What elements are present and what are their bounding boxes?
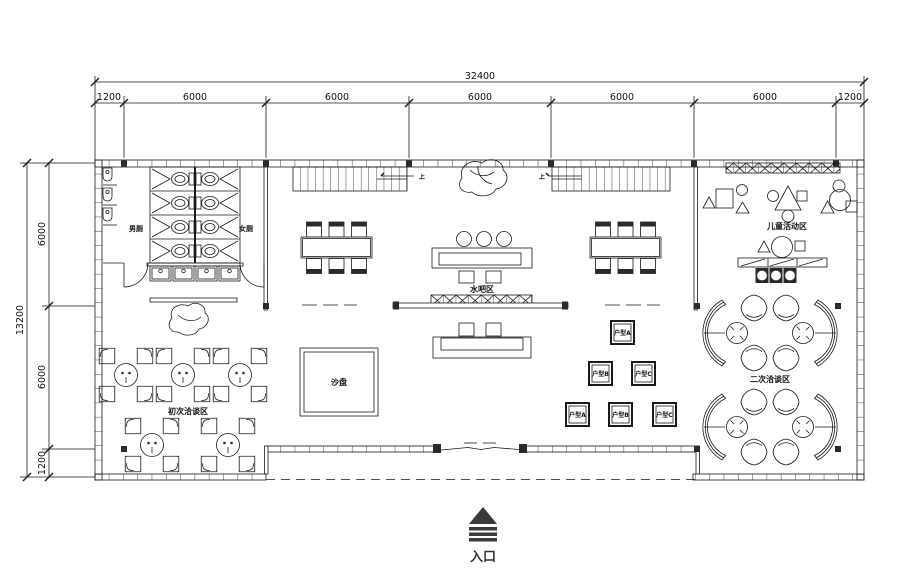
dim-seg: 1200 [37,451,48,475]
negotiation-table-group [117,410,186,479]
dim-seg: 1200 [838,92,862,103]
urinal [103,208,112,221]
stair-up-label: 上 [539,173,545,181]
dim-seg: 6000 [325,92,349,103]
second-negotiation-label: 二次洽谈区 [750,374,790,384]
children-activity-label: 儿童活动区 [766,221,807,231]
dim-seg: 6000 [37,365,48,389]
unit-board: 户型B [609,403,632,426]
sink-counter [150,266,240,281]
dim-seg: 6000 [610,92,634,103]
dim-seg: 6000 [183,92,207,103]
door-swing [124,263,148,287]
partition-wall-right [694,167,698,310]
unit-board: 户型B [589,362,612,385]
unit-board: 户型C [653,403,676,426]
bar-partition [393,303,568,308]
unit-board: 户型A [566,403,589,426]
negotiation-table-group [205,340,274,409]
unit-board: 户型A [611,321,634,344]
toilet-block: 男厕 女厕 [103,167,264,302]
kid-stool [770,268,783,283]
svg-text:户型A: 户型A [614,329,631,337]
svg-text:户型C: 户型C [635,370,652,378]
mens-toilet-label: 男厕 [129,224,143,233]
svg-text:户型B: 户型B [592,370,609,378]
bar-stool [457,232,472,247]
negotiation-table-group [193,410,262,479]
conference-table-right [590,222,661,274]
svg-text:户型B: 户型B [612,411,629,419]
bar-stool [497,232,512,247]
dim-seg: 6000 [468,92,492,103]
bench [150,298,237,302]
svg-text:户型A: 户型A [569,411,586,419]
initial-negotiation-label: 初次洽谈区 [168,406,208,416]
initial-negotiation-area: 初次洽谈区 [91,340,274,479]
stair-left: 上 [293,167,425,191]
building-walls [95,160,864,480]
kid-stool [756,268,769,283]
floor-plan-drawing: 32400 1200 6000 6000 6000 6000 6000 1200… [0,0,904,575]
sofa-set [703,389,837,465]
bar-stool [477,232,492,247]
kid-stool [784,268,797,283]
urinal [103,188,112,201]
unit-board: 户型C [632,362,655,385]
entrance-marker: 入口 [469,507,497,565]
svg-text:户型C: 户型C [656,411,673,419]
stair-right: 上 [539,167,670,191]
dim-total-height: 13200 [15,305,26,335]
conference-table-left [301,222,372,274]
second-negotiation-area: 二次洽谈区 [703,295,837,465]
entrance-label: 入口 [470,550,496,565]
stair-up-label: 上 [419,173,425,181]
entrance-arrow-icon [469,507,497,524]
sand-table: 沙盘 [300,348,378,416]
entrance-door [433,443,527,453]
dim-seg: 6000 [37,222,48,246]
children-activity-area: 儿童活动区 [703,163,857,283]
top-dimension: 32400 1200 6000 6000 6000 6000 6000 1200 [91,71,868,160]
dim-seg: 1200 [97,92,121,103]
womens-toilet-label: 女厕 [239,224,253,233]
sofa-set [703,295,837,371]
unit-boards: 户型A 户型B 户型C 户型A 户型B 户型C [566,321,676,426]
urinal [103,168,112,181]
negotiation-table-group [148,340,217,409]
plant-toilet [169,303,208,335]
door-swing [240,263,264,287]
floor-plan-canvas: 32400 1200 6000 6000 6000 6000 6000 1200… [0,0,904,575]
left-dimension: 13200 6000 6000 1200 [15,159,95,481]
water-bar-label: 水吧区 [469,284,494,294]
sand-table-label: 沙盘 [331,377,347,387]
dim-seg: 6000 [753,92,777,103]
dim-total-width: 32400 [465,71,495,82]
partition-wall-left [264,167,268,310]
